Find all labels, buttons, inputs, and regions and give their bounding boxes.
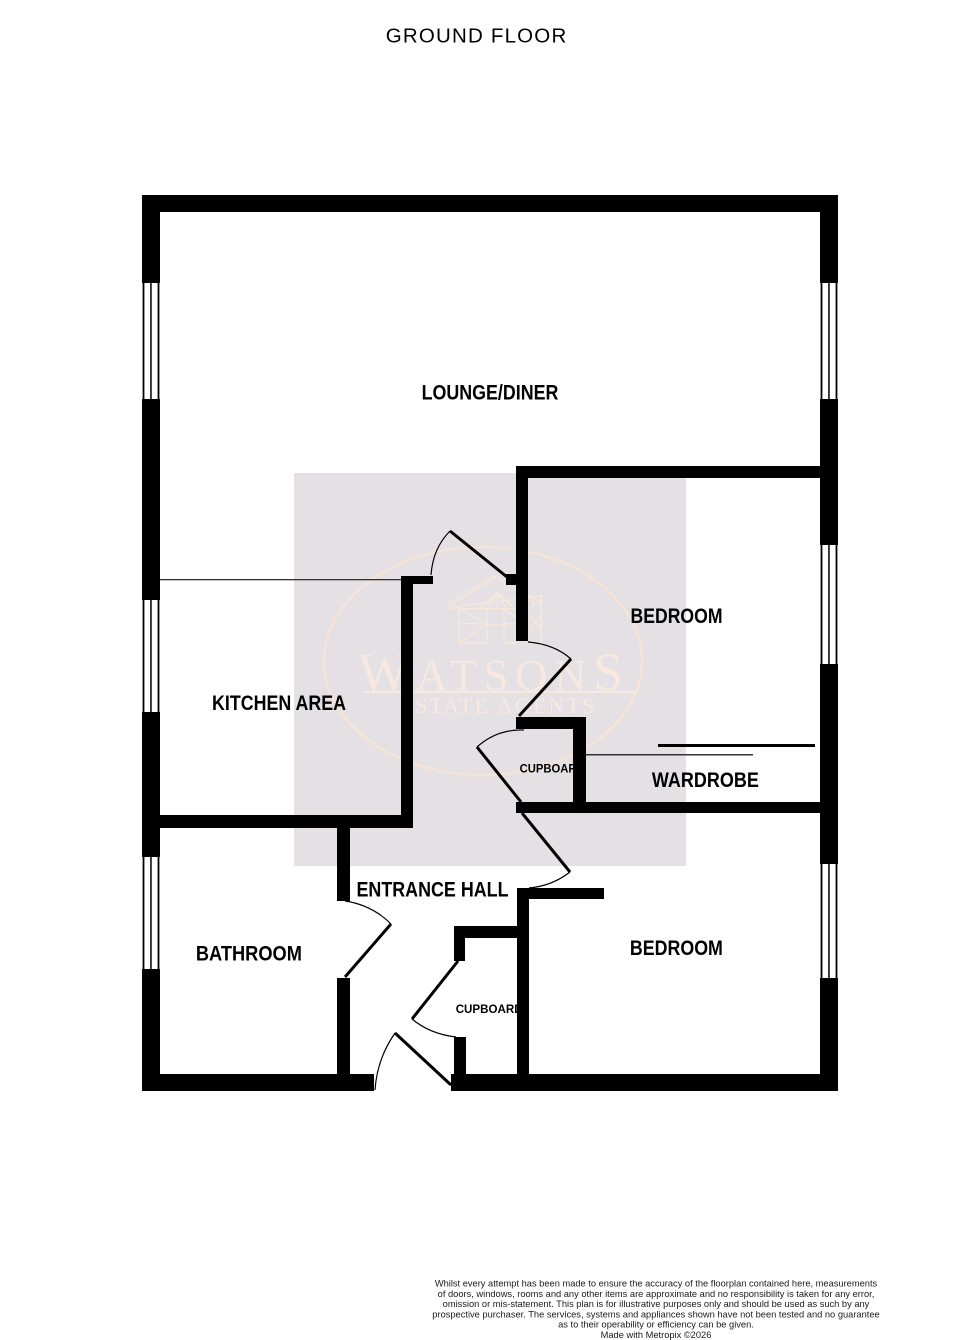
svg-text:KITCHEN AREA: KITCHEN AREA <box>212 691 346 715</box>
svg-text:Made with Metropix ©2026: Made with Metropix ©2026 <box>601 1330 712 1340</box>
svg-text:ENTRANCE HALL: ENTRANCE HALL <box>357 877 509 901</box>
svg-text:BEDROOM: BEDROOM <box>630 936 723 960</box>
svg-text:Whilst every attempt has been: Whilst every attempt has been made to en… <box>435 1279 878 1289</box>
svg-text:WARDROBE: WARDROBE <box>652 768 759 792</box>
svg-text:of doors, windows, rooms and a: of doors, windows, rooms and any other i… <box>438 1289 875 1299</box>
svg-text:prospective purchaser. The ser: prospective purchaser. The services, sys… <box>432 1309 879 1319</box>
svg-text:omission or mis-statement. Thi: omission or mis-statement. This plan is … <box>443 1299 870 1309</box>
svg-text:as to their operability or eff: as to their operability or efficiency ca… <box>558 1320 754 1330</box>
svg-text:BEDROOM: BEDROOM <box>631 604 723 628</box>
svg-text:CUPBOARD: CUPBOARD <box>456 1002 523 1016</box>
svg-text:LOUNGE/DINER: LOUNGE/DINER <box>422 381 559 405</box>
svg-text:GROUND FLOOR: GROUND FLOOR <box>386 24 567 47</box>
svg-text:BATHROOM: BATHROOM <box>196 942 302 966</box>
svg-text:ESTATE AGENTS: ESTATE AGENTS <box>399 693 596 718</box>
